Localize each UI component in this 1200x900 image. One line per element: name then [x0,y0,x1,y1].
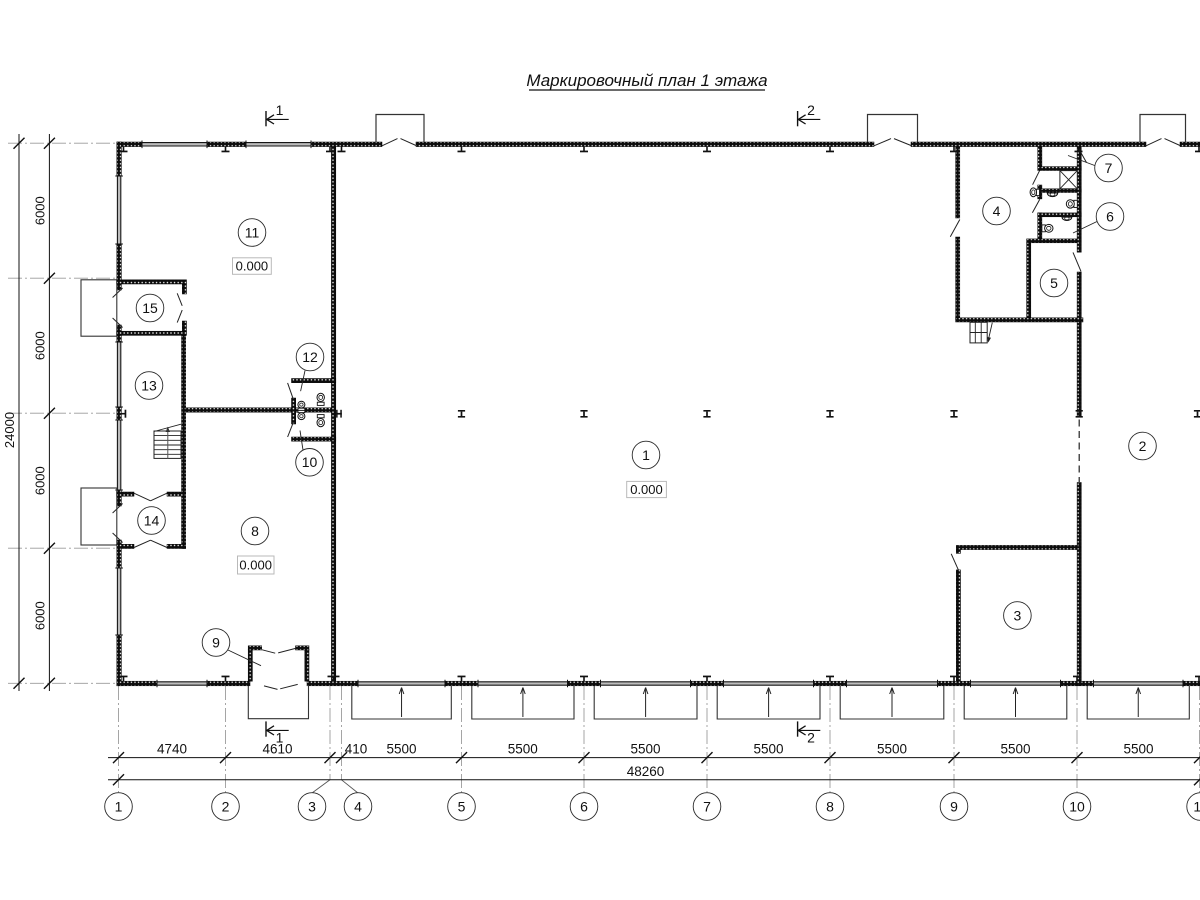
svg-text:11: 11 [1193,798,1200,814]
svg-text:0.000: 0.000 [239,558,272,573]
svg-text:4: 4 [354,798,362,814]
svg-text:9: 9 [212,634,220,650]
svg-text:9: 9 [950,798,958,814]
svg-text:2: 2 [807,102,815,118]
svg-text:48260: 48260 [627,764,665,779]
svg-text:410: 410 [345,742,368,757]
svg-text:14: 14 [144,512,160,528]
svg-text:6: 6 [1106,208,1114,224]
svg-text:10: 10 [302,454,318,470]
svg-text:5500: 5500 [630,742,660,757]
svg-text:Маркировочный план 1 этажа: Маркировочный план 1 этажа [526,71,767,90]
svg-text:4740: 4740 [157,742,187,757]
svg-text:6000: 6000 [33,331,48,360]
svg-text:13: 13 [141,377,157,393]
svg-text:1: 1 [642,447,650,463]
svg-text:5500: 5500 [508,742,538,757]
svg-text:4: 4 [993,203,1001,219]
svg-text:6: 6 [580,798,588,814]
svg-text:24000: 24000 [2,412,17,448]
svg-text:7: 7 [703,798,711,814]
svg-text:8: 8 [251,523,259,539]
svg-text:0.000: 0.000 [630,482,663,497]
svg-text:12: 12 [302,349,318,365]
svg-text:5500: 5500 [1123,742,1153,757]
svg-text:5500: 5500 [1000,742,1030,757]
svg-text:1: 1 [115,798,123,814]
svg-text:5500: 5500 [386,742,416,757]
svg-text:11: 11 [245,224,260,240]
svg-text:1: 1 [276,102,284,118]
svg-text:7: 7 [1105,160,1113,176]
svg-text:10: 10 [1069,798,1085,814]
svg-text:3: 3 [1014,607,1022,623]
svg-text:2: 2 [807,730,815,746]
svg-text:5500: 5500 [753,742,783,757]
svg-text:5500: 5500 [877,742,907,757]
svg-text:6000: 6000 [33,196,48,225]
svg-text:6000: 6000 [33,601,48,630]
svg-text:8: 8 [826,798,834,814]
svg-text:1: 1 [276,730,284,746]
svg-text:3: 3 [308,798,316,814]
svg-text:0.000: 0.000 [236,258,269,273]
svg-text:15: 15 [142,300,158,316]
svg-text:5: 5 [1050,275,1058,291]
svg-text:5: 5 [458,798,466,814]
svg-text:2: 2 [1139,438,1147,454]
svg-text:6000: 6000 [33,466,48,495]
svg-text:2: 2 [222,798,230,814]
